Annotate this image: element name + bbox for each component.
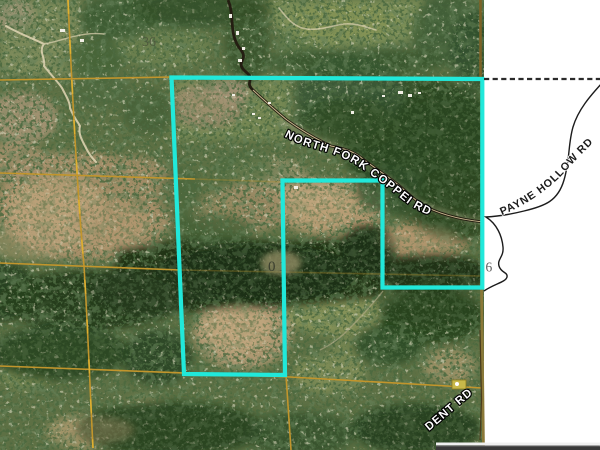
svg-text:36: 36 xyxy=(142,35,156,50)
svg-text:PAYNE HOLLOW RD: PAYNE HOLLOW RD xyxy=(498,136,596,218)
svg-text:01: 01 xyxy=(268,259,289,275)
svg-text:6: 6 xyxy=(486,260,493,275)
